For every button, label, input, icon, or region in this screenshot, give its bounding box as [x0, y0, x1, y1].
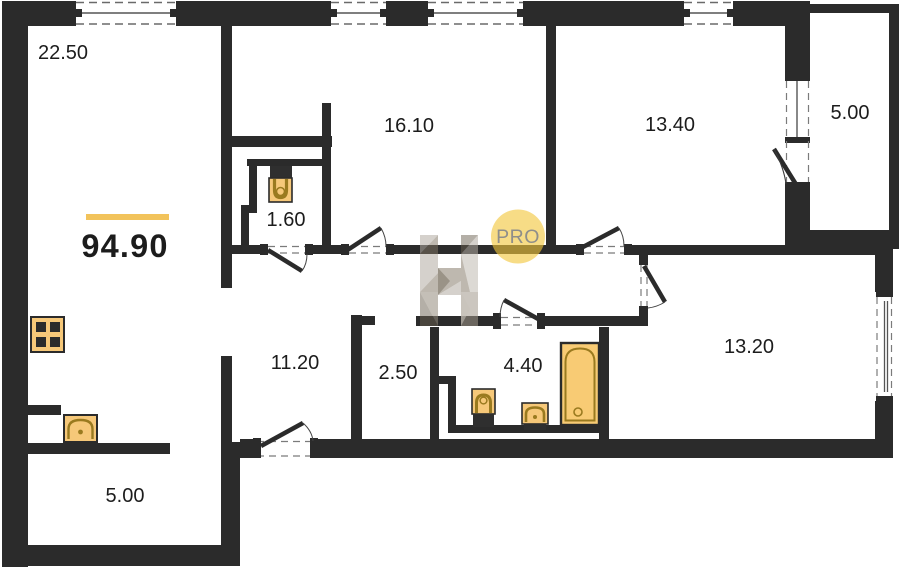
svg-text:13.20: 13.20: [724, 336, 774, 358]
svg-text:13.40: 13.40: [645, 114, 695, 136]
svg-text:11.20: 11.20: [271, 352, 320, 374]
svg-text:2.50: 2.50: [379, 362, 418, 384]
svg-text:PRO: PRO: [496, 226, 540, 248]
svg-text:4.40: 4.40: [504, 355, 543, 377]
svg-text:94.90: 94.90: [81, 228, 168, 264]
svg-text:16.10: 16.10: [384, 115, 434, 137]
svg-text:1.60: 1.60: [267, 209, 306, 231]
svg-text:5.00: 5.00: [106, 485, 145, 507]
svg-text:22.50: 22.50: [38, 42, 88, 64]
svg-text:5.00: 5.00: [831, 102, 870, 124]
